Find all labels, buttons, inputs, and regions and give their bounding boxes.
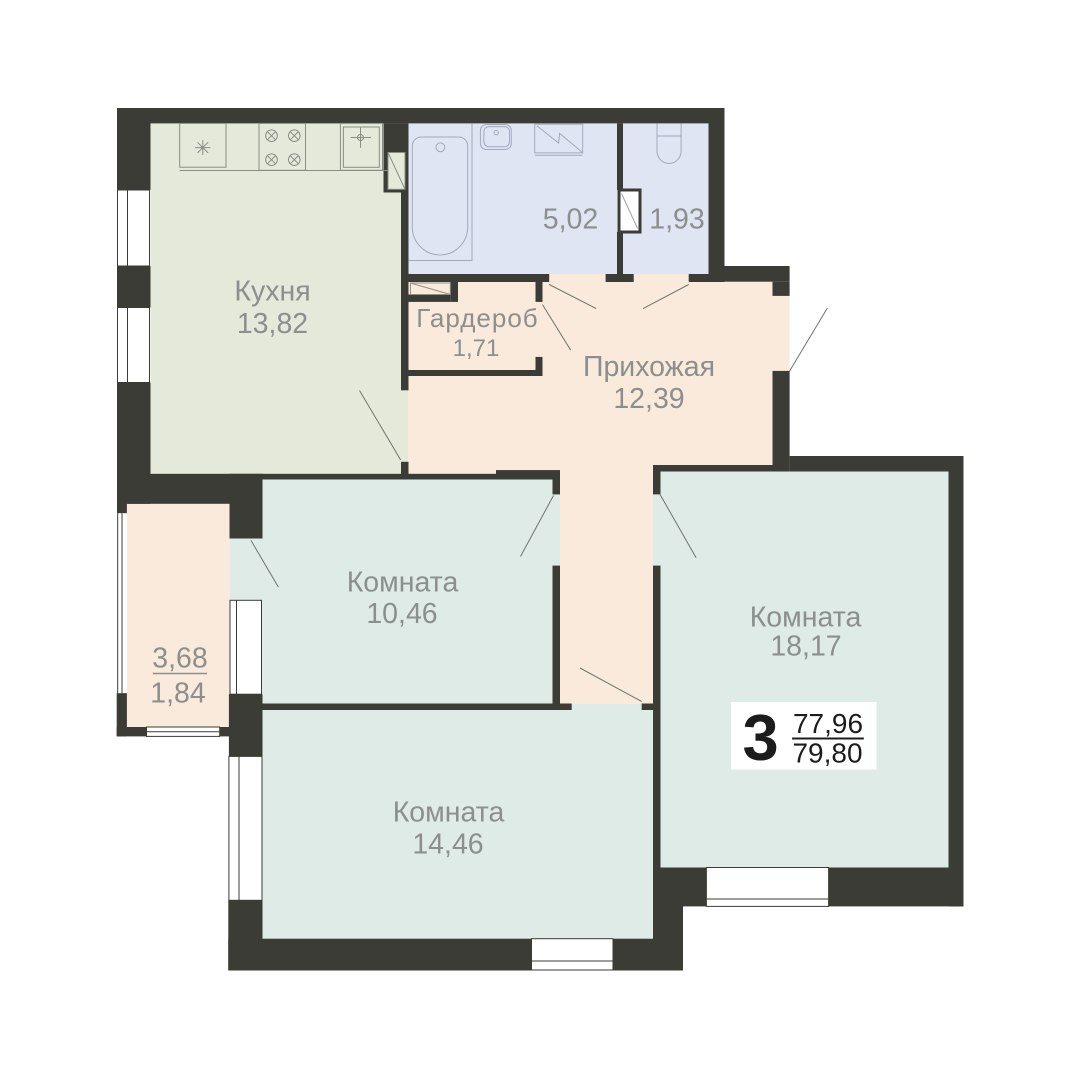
svg-text:Кухня: Кухня (234, 276, 310, 308)
svg-text:5,02: 5,02 (543, 203, 598, 235)
svg-text:3: 3 (743, 701, 779, 774)
svg-text:14,46: 14,46 (412, 829, 483, 861)
svg-text:Гардероб: Гардероб (416, 303, 538, 333)
svg-text:3,68: 3,68 (152, 643, 207, 675)
svg-text:Прихожая: Прихожая (583, 351, 715, 383)
svg-text:12,39: 12,39 (613, 383, 684, 415)
svg-text:1,71: 1,71 (453, 335, 500, 362)
svg-text:Комната: Комната (393, 797, 505, 829)
svg-text:Комната: Комната (347, 567, 459, 599)
svg-text:1,84: 1,84 (150, 678, 206, 710)
svg-text:10,46: 10,46 (366, 598, 437, 630)
svg-text:Комната: Комната (750, 602, 862, 634)
svg-text:77,96: 77,96 (793, 708, 863, 739)
svg-text:13,82: 13,82 (237, 308, 308, 340)
svg-text:1,93: 1,93 (649, 203, 704, 235)
svg-text:79,80: 79,80 (792, 738, 862, 769)
svg-text:18,17: 18,17 (770, 631, 841, 663)
